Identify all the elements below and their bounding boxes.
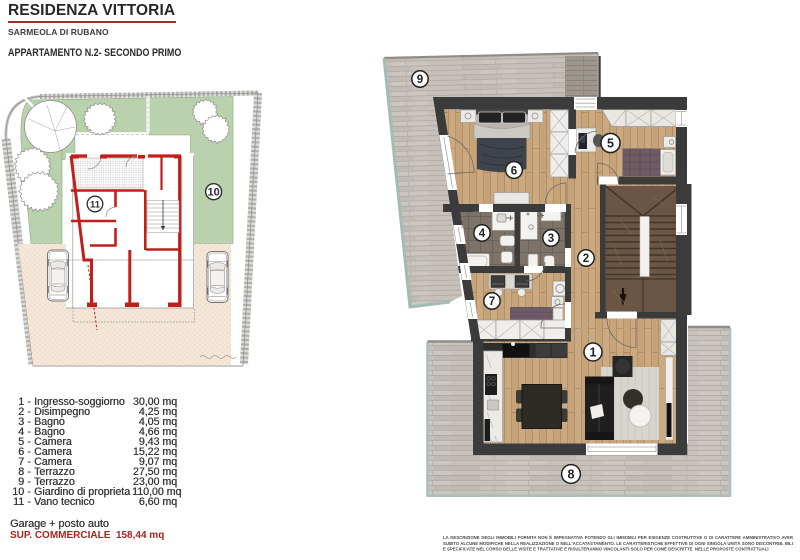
svg-text:9: 9 <box>417 74 423 86</box>
svg-text:2: 2 <box>583 253 589 265</box>
svg-text:6: 6 <box>511 165 517 177</box>
svg-text:5: 5 <box>607 137 614 151</box>
svg-text:8: 8 <box>568 468 575 482</box>
svg-text:3: 3 <box>548 233 554 245</box>
svg-text:10: 10 <box>207 187 219 199</box>
svg-text:7: 7 <box>489 296 495 308</box>
svg-text:11: 11 <box>90 200 101 211</box>
svg-text:4: 4 <box>479 228 486 240</box>
svg-text:1: 1 <box>590 346 597 360</box>
